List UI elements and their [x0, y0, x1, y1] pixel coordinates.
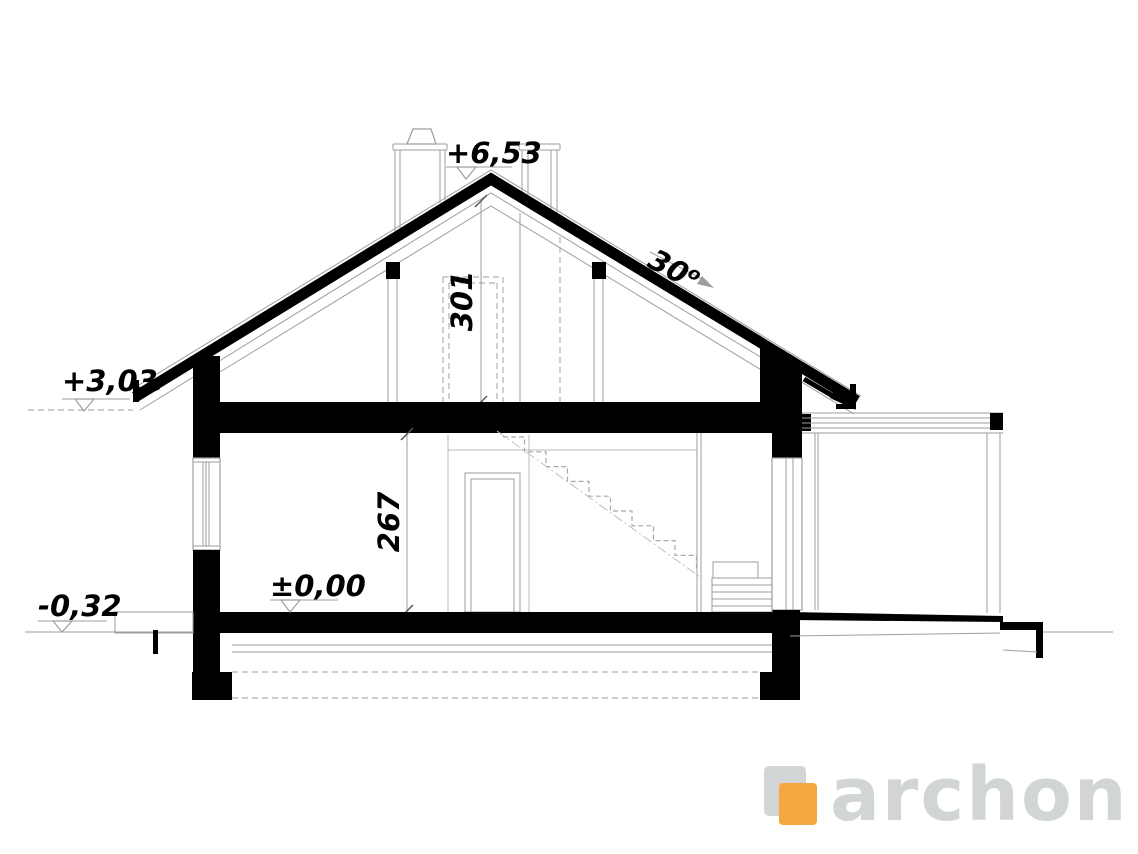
chimney-cap	[407, 129, 436, 144]
level-marker-icon	[281, 600, 300, 612]
stair-slope-line	[497, 431, 700, 577]
ridge-level: +6,53	[446, 136, 542, 179]
ground-level: -0,32	[38, 589, 122, 632]
right-window	[772, 458, 802, 610]
eave-level-label: +3,03	[62, 364, 158, 398]
logo-mark-orange-square	[779, 783, 817, 825]
attic-height-label: 301	[445, 271, 479, 332]
roof-angle: 30o	[643, 242, 714, 297]
section-drawing-page: 301	[0, 0, 1138, 854]
porch-slab	[790, 612, 1003, 622]
level-marker-icon	[75, 399, 94, 411]
grade-marker	[153, 630, 158, 654]
floor-slab	[220, 612, 772, 698]
left-footing	[192, 672, 232, 700]
left-foundation-wall	[193, 612, 220, 672]
roof-cladding	[135, 179, 857, 401]
interior-door	[465, 473, 520, 612]
staircase-hidden	[503, 437, 697, 570]
archon-logo: archon	[764, 752, 1129, 838]
level-marker-icon	[53, 621, 72, 632]
ground-level-label: -0,32	[38, 589, 122, 623]
right-wall	[760, 340, 802, 700]
attic-structure	[386, 213, 606, 402]
eave-level: +3,03	[28, 364, 158, 411]
room-height-dimension: 267	[372, 428, 413, 617]
attic-height-dimension: 301	[445, 195, 487, 408]
interior	[448, 431, 772, 612]
room-height-label: 267	[372, 491, 406, 552]
ceiling-slab	[193, 402, 802, 433]
right-purlin-post	[592, 262, 606, 279]
bottom-steps	[712, 562, 772, 612]
porch	[790, 413, 1113, 658]
house-cross-section: 301	[0, 0, 1138, 854]
porch-beam-end	[990, 413, 1003, 430]
floor-level-label: ±0,00	[270, 569, 366, 603]
logo-text: archon	[830, 752, 1129, 838]
left-purlin-post	[386, 262, 400, 279]
floor-level: ±0,00	[270, 569, 366, 612]
right-footing	[760, 672, 800, 700]
level-marker-icon	[457, 167, 476, 179]
roof	[129, 170, 861, 414]
ridge-level-label: +6,53	[446, 136, 542, 170]
roof-angle-label: 30o	[643, 242, 706, 297]
